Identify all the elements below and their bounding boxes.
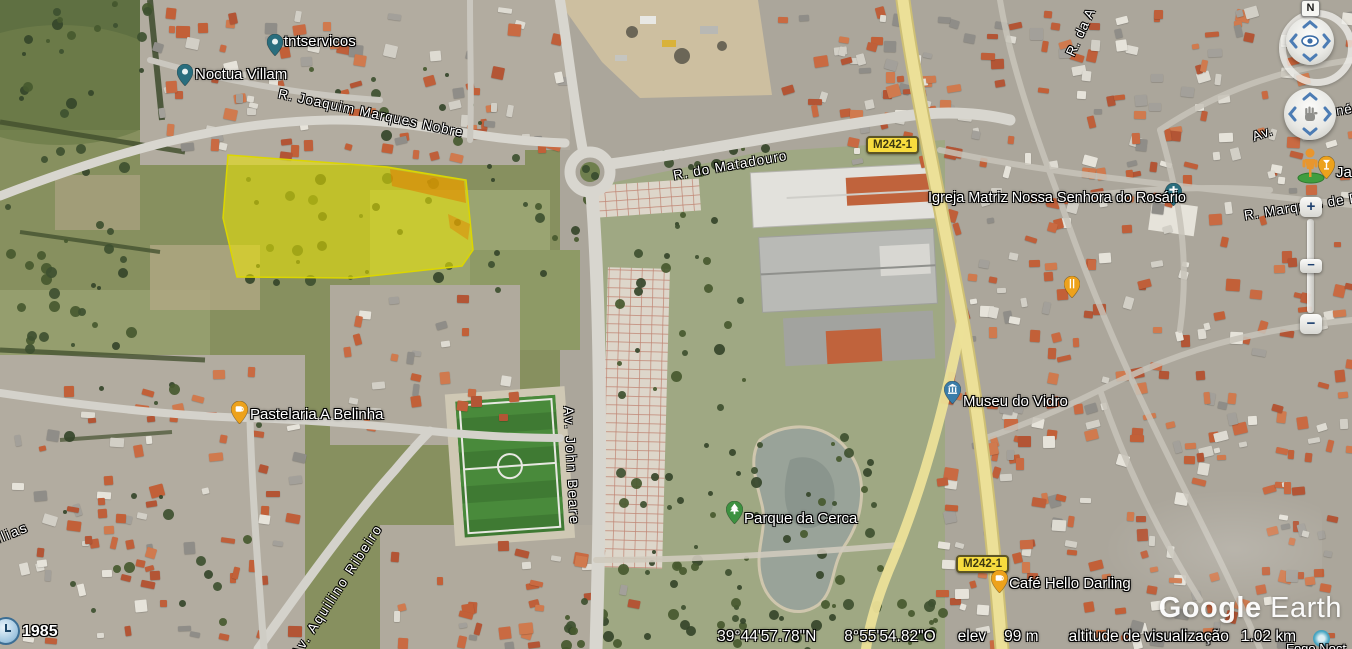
zoom-out-button[interactable]: − [1300, 314, 1322, 334]
elevation-label: elev [958, 628, 986, 646]
view-altitude-label: altitude de visualização [1069, 628, 1229, 646]
look-up-arrow-icon[interactable] [1302, 20, 1318, 29]
longitude-readout: 8°55'54.82"O [844, 628, 935, 646]
status-bar: 39°44'57.78"N 8°55'54.82"O elev 99 m alt… [717, 628, 1296, 646]
move-up-arrow-icon[interactable] [1302, 92, 1318, 101]
latitude-readout: 39°44'57.78"N [717, 628, 816, 646]
poi-pin-museu-do-vidro[interactable] [944, 381, 961, 409]
look-joystick[interactable] [1286, 17, 1334, 65]
poi-pin-cafe-hello-darling[interactable] [991, 570, 1008, 598]
zoom-in-button[interactable]: + [1300, 197, 1322, 217]
road-shield-m242-top: M242-1 [866, 136, 919, 154]
look-left-arrow-icon[interactable] [1289, 33, 1298, 49]
look-down-arrow-icon[interactable] [1302, 53, 1318, 62]
pegman[interactable] [1296, 146, 1326, 189]
imagery-year: 1985 [22, 623, 58, 641]
poi-pin-parque-da-cerca[interactable] [726, 501, 743, 529]
poi-label-museu-do-vidro: Museu do Vidro [963, 393, 1068, 410]
street-label-ne-fragment: né [1335, 101, 1352, 118]
look-right-arrow-icon[interactable] [1322, 33, 1331, 49]
poi-pin-tntservicos[interactable] [267, 34, 283, 61]
view-altitude-value: 1.02 km [1241, 628, 1296, 646]
move-right-arrow-icon[interactable] [1323, 106, 1332, 122]
move-joystick[interactable] [1284, 88, 1336, 140]
move-left-arrow-icon[interactable] [1288, 106, 1297, 122]
logo-google: Google [1159, 592, 1262, 624]
poi-pin-restaurant[interactable] [1064, 276, 1080, 303]
poi-label-ja: Ja [1336, 164, 1352, 181]
poi-label-tntservicos: tntservicos [284, 33, 356, 50]
poi-label-parque-da-cerca: Parque da Cerca [744, 510, 857, 527]
poi-label-igreja: Igreja Matriz Nossa Senhora do Rosário [928, 190, 1186, 206]
google-earth-logo: Google Earth [1159, 592, 1342, 625]
move-down-arrow-icon[interactable] [1302, 127, 1318, 136]
watermark-glare [1102, 489, 1322, 609]
poi-label-pastelaria: Pastelaria A Belinha [250, 406, 383, 423]
zoom-slider-handle[interactable]: − [1300, 259, 1322, 273]
poi-pin-noctua-villam[interactable] [177, 64, 193, 91]
google-earth-viewport[interactable]: R. Joaquim Marques Nobre R. do Matadouro… [0, 0, 1352, 649]
compass-north-button[interactable]: N [1301, 0, 1320, 17]
eye-icon [1300, 35, 1320, 47]
hand-icon [1302, 105, 1318, 123]
logo-earth: Earth [1270, 592, 1342, 624]
elevation-value: 99 m [1004, 628, 1038, 646]
poi-label-noctua-villam: Noctua Villam [195, 66, 287, 83]
poi-pin-pastelaria[interactable] [231, 401, 248, 429]
